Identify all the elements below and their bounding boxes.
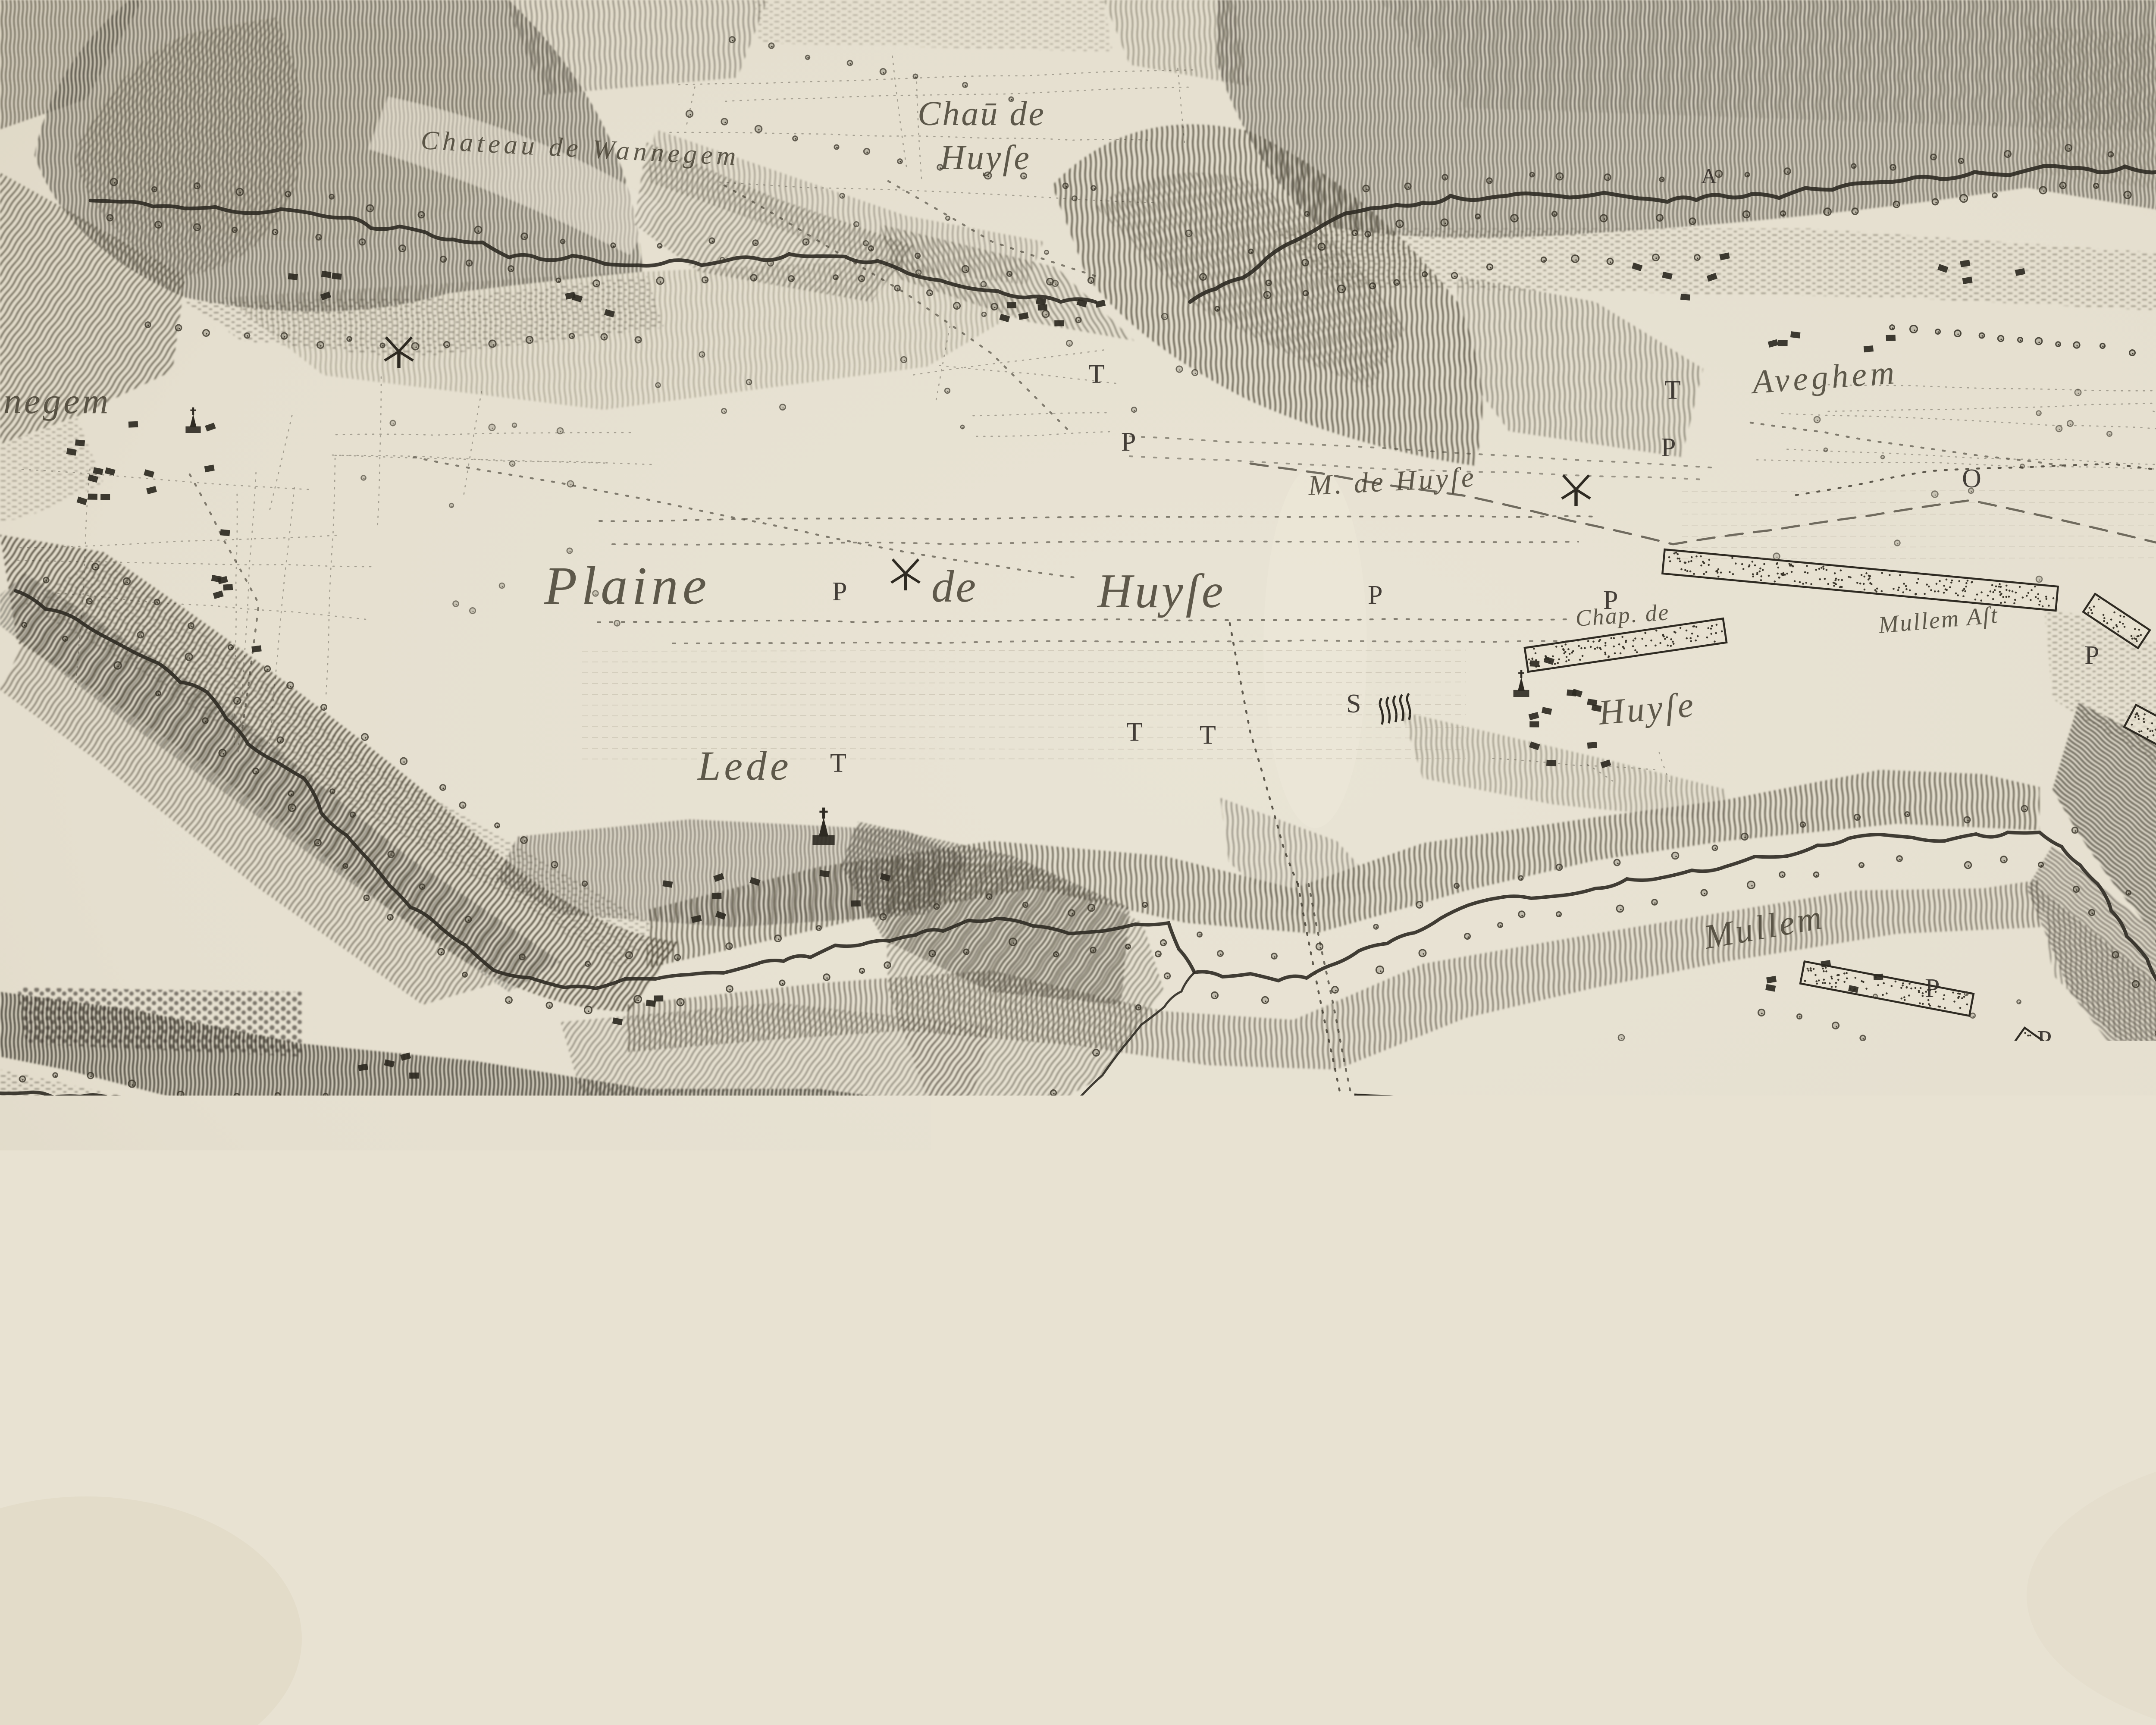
svg-text:O: O: [1366, 1404, 1385, 1433]
svg-text:X: X: [706, 1571, 725, 1600]
svg-text:G: G: [1063, 1314, 1083, 1343]
svg-text:C: C: [1542, 1546, 1560, 1576]
svg-text:Q: Q: [951, 1684, 970, 1713]
svg-text:Plaine: Plaine: [1782, 1664, 1941, 1725]
svg-text:M. de Royegem: M. de Royegem: [922, 1180, 1105, 1209]
svg-text:E: E: [99, 1639, 115, 1668]
svg-text:Lede: Lede: [697, 743, 792, 789]
svg-text:T: T: [1664, 376, 1681, 405]
svg-text:Huyſe: Huyſe: [1097, 565, 1225, 618]
svg-text:X: X: [1031, 1604, 1050, 1633]
svg-text:A: A: [1701, 164, 1717, 188]
svg-text:R: R: [1011, 1696, 1029, 1725]
svg-text:F: F: [1400, 1373, 1415, 1402]
svg-text:L: L: [2006, 1604, 2023, 1634]
svg-text:Q: Q: [651, 1612, 670, 1641]
svg-text:T: T: [1088, 360, 1105, 389]
svg-text:nnegem: nnegem: [0, 381, 111, 421]
svg-text:R: R: [489, 1612, 507, 1641]
svg-text:O: O: [1354, 1300, 1373, 1329]
svg-text:S: S: [1156, 1185, 1171, 1214]
svg-text:P: P: [1368, 580, 1382, 610]
svg-text:N: N: [1806, 1394, 1826, 1424]
svg-text:Huyſe: Huyſe: [940, 139, 1031, 177]
svg-text:G: G: [1161, 1252, 1181, 1281]
svg-text:O: O: [1962, 464, 1981, 493]
svg-text:C: C: [1735, 1560, 1753, 1589]
svg-text:F: F: [1456, 1431, 1470, 1460]
svg-text:P: P: [1661, 433, 1676, 462]
svg-text:T: T: [1184, 1308, 1200, 1338]
svg-text:Q: Q: [1337, 1229, 1356, 1258]
svg-text:N: N: [2002, 1456, 2022, 1485]
svg-text:de: de: [931, 561, 978, 612]
svg-text:T: T: [1200, 721, 1216, 750]
svg-text:T: T: [752, 1595, 769, 1624]
svg-text:P: P: [1121, 427, 1136, 457]
svg-text:Chaū de: Chaū de: [918, 95, 1046, 133]
svg-text:L: L: [1589, 1612, 1605, 1641]
svg-text:Q: Q: [1202, 1429, 1221, 1458]
svg-text:T: T: [1275, 1152, 1292, 1181]
svg-text:H: H: [723, 1301, 742, 1330]
svg-text:O: O: [2141, 1515, 2156, 1545]
svg-text:Q: Q: [1250, 1327, 1269, 1356]
svg-text:S: S: [1346, 689, 1361, 718]
svg-text:P: P: [2084, 641, 2099, 670]
svg-text:G: G: [923, 1403, 943, 1432]
svg-text:T: T: [1126, 718, 1143, 747]
svg-text:P: P: [832, 577, 847, 606]
svg-text:P: P: [2037, 1026, 2052, 1055]
svg-text:I: I: [948, 1584, 957, 1614]
svg-text:de: de: [2048, 1683, 2092, 1725]
svg-text:Plaine: Plaine: [544, 556, 711, 616]
svg-text:T: T: [830, 749, 846, 778]
svg-text:N: N: [1546, 1465, 1566, 1495]
svg-text:H: H: [874, 1302, 893, 1331]
svg-text:P: P: [1925, 974, 1940, 1003]
